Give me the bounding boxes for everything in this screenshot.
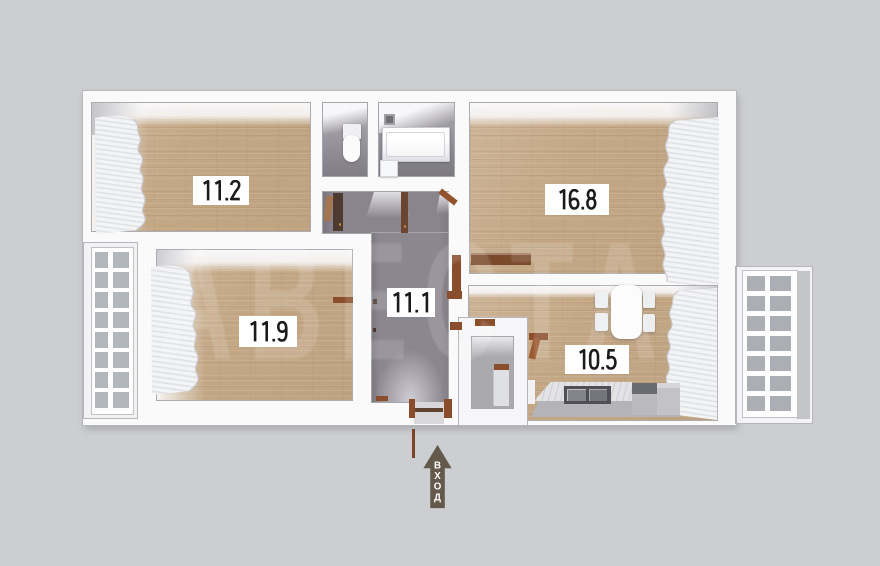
svg-text:ВХОД: ВХОД bbox=[434, 460, 442, 503]
